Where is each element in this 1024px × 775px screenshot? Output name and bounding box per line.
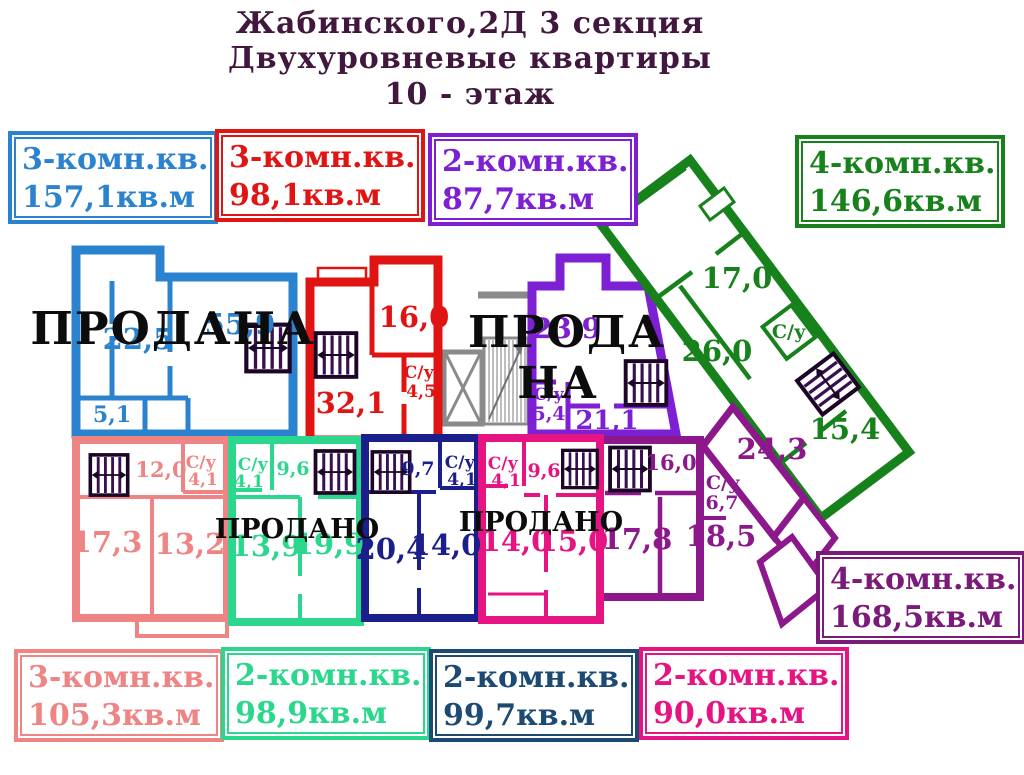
apartment-type: 2-комн.кв.	[653, 657, 839, 695]
title-line-3: 10 - этаж	[0, 77, 940, 112]
room-area-label: 5,1	[93, 402, 131, 428]
apartment-area: 98,9кв.м	[235, 695, 421, 733]
stairs-flight-icon	[626, 361, 667, 405]
room-area-label: 9,7	[401, 458, 434, 480]
legend-box-magenta: 2-комн.кв. 90,0кв.м	[639, 647, 849, 740]
sold-stamp: ПРОДА	[468, 307, 666, 358]
room-area-label: С/у	[404, 363, 435, 383]
apartment-area: 90,0кв.м	[653, 695, 839, 733]
stairs-flight-icon	[316, 333, 357, 377]
legend-box-salmon: 3-комн.кв. 105,3кв.м	[14, 649, 224, 742]
sold-stamp: ПРОДАНО	[459, 507, 623, 538]
room-area-label: 18,5	[686, 519, 757, 553]
room-area-label: С/у	[772, 321, 806, 343]
apartment-area: 168,5кв.м	[830, 599, 1016, 637]
apartment-type: 3-комн.кв.	[229, 139, 415, 177]
apartment-area: 157,1кв.м	[22, 179, 208, 217]
room-area-label: 17,0	[702, 261, 773, 295]
room-area-label: 32,1	[316, 386, 387, 420]
sold-stamp: ПРОДАНО	[215, 514, 379, 545]
apartment-type: 4-комн.кв.	[830, 561, 1016, 599]
room-area-label: С/у	[706, 472, 740, 494]
page-title: Жабинского,2Д 3 секция Двухуровневые ква…	[0, 6, 940, 112]
apartment-area: 98,1кв.м	[229, 177, 415, 215]
stairs-flight-icon	[610, 448, 650, 491]
apartment-type: 2-комн.кв.	[443, 659, 629, 697]
room-area-label: 17,3	[72, 525, 143, 559]
apartment-area: 146,6кв.м	[809, 183, 995, 221]
apartment-type: 3-комн.кв.	[22, 141, 208, 179]
apartment-type: 2-комн.кв.	[235, 657, 421, 695]
apartment-area: 99,7кв.м	[443, 697, 629, 735]
stairs-flight-icon	[563, 450, 598, 487]
room-area-label: 9,6	[527, 460, 560, 482]
title-line-1: Жабинского,2Д 3 секция	[0, 6, 940, 41]
room-area-label: 6,7	[705, 492, 738, 514]
room-area-label: 24,3	[737, 432, 808, 466]
room-area-label: 12,0	[135, 457, 186, 482]
apartment-type: 4-комн.кв.	[809, 145, 995, 183]
floor-plan-page: 22,5 55,9 5,1 16,0 32,1 С/у 4,5 23,9 21,…	[0, 0, 1024, 775]
legend-box-blue: 3-комн.кв. 157,1кв.м	[8, 131, 218, 224]
legend-box-violet: 2-комн.кв. 87,7кв.м	[428, 133, 638, 226]
apartment-type: 2-комн.кв.	[442, 143, 628, 181]
legend-box-purple: 4-комн.кв. 168,5кв.м	[816, 551, 1024, 644]
apartment-area: 105,3кв.м	[28, 697, 214, 735]
elevator-shaft-icon	[444, 352, 482, 424]
stairs-flight-icon	[316, 451, 355, 493]
title-line-2: Двухуровневые квартиры	[0, 41, 940, 76]
room-area-label: 21,1	[575, 406, 638, 436]
sold-stamp: ПРОДАНА	[30, 302, 315, 355]
room-area-label: 4,1	[491, 471, 521, 491]
room-area-label: 16,0	[379, 300, 450, 334]
apartment-area: 87,7кв.м	[442, 181, 628, 219]
legend-box-red: 3-комн.кв. 98,1кв.м	[215, 129, 425, 222]
legend-box-spring: 2-комн.кв. 98,9кв.м	[221, 647, 431, 740]
room-area-label: 26,0	[682, 334, 753, 368]
sold-stamp: НА	[517, 358, 598, 409]
legend-box-green: 4-комн.кв. 146,6кв.м	[795, 135, 1005, 228]
apartment-type: 3-комн.кв.	[28, 659, 214, 697]
room-area-label: 4,1	[188, 470, 218, 490]
room-area-label: 15,4	[810, 412, 881, 446]
room-area-label: 4,1	[447, 470, 477, 490]
stairs-flight-icon	[90, 455, 127, 495]
room-area-label: 9,6	[276, 458, 309, 480]
room-area-label: 4,1	[234, 472, 264, 492]
room-area-label: 4,5	[406, 382, 436, 402]
room-area-label: 16,0	[645, 450, 696, 475]
legend-box-navy: 2-комн.кв. 99,7кв.м	[429, 649, 639, 742]
